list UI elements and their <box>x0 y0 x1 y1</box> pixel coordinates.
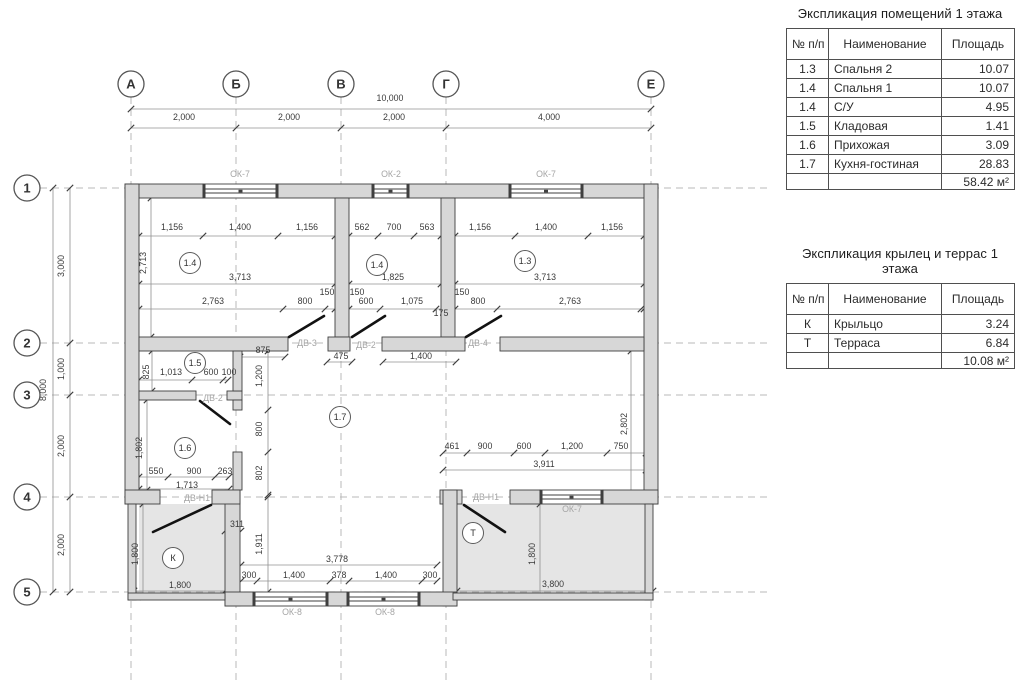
room-schedule-title: Экспликация помещений 1 этажа <box>786 6 1014 21</box>
dim-label: 900 <box>478 441 493 451</box>
window-jamb <box>372 184 375 198</box>
dim-label: 600 <box>517 441 532 451</box>
dim-label: 563 <box>420 222 435 232</box>
row-number-cell: Т <box>787 334 829 353</box>
wall <box>443 490 457 606</box>
dim-label: 600 <box>204 367 219 377</box>
door-tag: ДВ-2 <box>356 340 376 350</box>
dim-label: 2,000 <box>278 112 300 122</box>
window-tag: ОК-8 <box>375 607 395 617</box>
wall <box>510 490 540 504</box>
dim-label: 550 <box>149 466 164 476</box>
dim-label: 3,800 <box>542 579 564 589</box>
room-name-cell: Прихожая <box>829 136 942 155</box>
dim-label: 600 <box>359 296 374 306</box>
window-jamb <box>418 592 421 606</box>
dim-label: 378 <box>332 570 347 580</box>
table-row: 1.7Кухня-гостиная28.83 <box>787 155 1015 174</box>
dim-label: 1,400 <box>375 570 397 580</box>
door-tag: ДВ-4 <box>468 338 488 348</box>
window-jamb <box>407 184 410 198</box>
dim-label: 3,778 <box>326 554 348 564</box>
room-badge-label: К <box>170 553 176 563</box>
area-cell: 6.84 <box>942 334 1015 353</box>
room-badge-label: Т <box>470 528 476 538</box>
window-center-mark <box>544 190 548 193</box>
wall <box>125 490 160 504</box>
window-jamb <box>203 184 206 198</box>
room-schedule: Экспликация помещений 1 этажа № п/пНаиме… <box>786 6 1014 190</box>
empty-cell <box>787 174 829 190</box>
dim-label: 475 <box>334 351 349 361</box>
empty-cell <box>829 353 942 369</box>
dim-label: 1,400 <box>229 222 251 232</box>
porch-terrace-schedule-title: Экспликация крылец и террас 1 этажа <box>786 246 1014 276</box>
window-jamb <box>276 184 279 198</box>
wall <box>233 400 242 410</box>
table-row: 1.3Спальня 210.07 <box>787 60 1015 79</box>
window-center-mark <box>239 190 243 193</box>
dim-label: 875 <box>256 345 271 355</box>
wall <box>139 391 196 400</box>
room-name-cell: Кухня-гостиная <box>829 155 942 174</box>
window-jamb <box>601 490 604 504</box>
room-name-cell: С/У <box>829 98 942 117</box>
dim-label: 750 <box>614 441 629 451</box>
window-jamb <box>540 490 543 504</box>
room-name-cell: Крыльцо <box>829 315 942 334</box>
window-jamb <box>581 184 584 198</box>
total-row: 58.42 м² <box>787 174 1015 190</box>
dim-label: 802 <box>254 466 264 481</box>
dim-label: 2,713 <box>138 252 148 274</box>
area-cell: 10.07 <box>942 60 1015 79</box>
dim-label: 2,000 <box>383 112 405 122</box>
header-row: № п/пНаименованиеПлощадь <box>787 29 1015 60</box>
dim-label: 800 <box>254 422 264 437</box>
dim-label: 4,000 <box>538 112 560 122</box>
axis-label: Г <box>442 77 450 92</box>
dim-label: 263 <box>218 466 233 476</box>
wall <box>225 490 240 606</box>
dim-label: 1,000 <box>56 358 66 380</box>
dim-label: 1,802 <box>134 437 144 459</box>
wall <box>328 592 347 606</box>
dim-label: 1,800 <box>130 543 140 565</box>
column-header: Площадь <box>942 29 1015 60</box>
column-header: Наименование <box>829 29 942 60</box>
room-badge-label: 1.6 <box>179 443 192 453</box>
room-badge-label: 1.3 <box>519 256 532 266</box>
area-cell: 28.83 <box>942 155 1015 174</box>
dim-label: 311 <box>230 519 244 529</box>
window-jamb <box>347 592 350 606</box>
door-tag: ДВ-Н1 <box>184 493 210 503</box>
area-cell: 10.07 <box>942 79 1015 98</box>
room-name-cell: Спальня 1 <box>829 79 942 98</box>
column-header: № п/п <box>787 29 829 60</box>
dim-label: 150 <box>455 287 470 297</box>
wall <box>603 490 658 504</box>
dim-label: 10,000 <box>377 93 404 103</box>
window-center-mark <box>389 190 393 193</box>
dim-label: 3,713 <box>229 272 251 282</box>
door-tag: ДВ-Н1 <box>473 492 499 502</box>
axis-label: А <box>126 77 136 92</box>
table-row: 1.6Прихожая3.09 <box>787 136 1015 155</box>
wall <box>128 593 225 600</box>
window-tag: ОК-2 <box>381 169 401 179</box>
axis-label: 5 <box>23 585 30 600</box>
table-row: ТТерраса6.84 <box>787 334 1015 353</box>
door-tag: ДВ-3 <box>297 338 317 348</box>
empty-cell <box>787 353 829 369</box>
dim-label: 1,400 <box>535 222 557 232</box>
row-number-cell: 1.4 <box>787 79 829 98</box>
wall <box>328 337 350 351</box>
dim-label: 100 <box>222 367 237 377</box>
dim-label: 1,156 <box>161 222 183 232</box>
dim-label: 825 <box>141 365 151 380</box>
dim-label: 2,000 <box>56 534 66 556</box>
axis-label: 1 <box>23 181 30 196</box>
room-name-cell: Терраса <box>829 334 942 353</box>
wall <box>212 490 240 504</box>
wall <box>335 198 349 337</box>
dim-label: 2,802 <box>619 413 629 435</box>
room-badge-label: 1.7 <box>334 412 347 422</box>
dim-label: 2,763 <box>202 296 224 306</box>
dim-label: 1,200 <box>561 441 583 451</box>
dim-label: 175 <box>434 308 449 318</box>
porch-terrace-schedule: Экспликация крылец и террас 1 этажа № п/… <box>786 246 1014 369</box>
dim-label: 800 <box>298 296 313 306</box>
axis-label: 4 <box>23 490 31 505</box>
row-number-cell: 1.6 <box>787 136 829 155</box>
axis-label: В <box>336 77 345 92</box>
dim-label: 2,000 <box>173 112 195 122</box>
dim-label: 1,013 <box>160 367 182 377</box>
dim-label: 700 <box>387 222 402 232</box>
wall <box>645 504 653 600</box>
door-tag: ДВ-2 <box>203 393 223 403</box>
room-schedule-table: № п/пНаименованиеПлощадь1.3Спальня 210.0… <box>786 28 1015 190</box>
area-cell: 1.41 <box>942 117 1015 136</box>
room-badge-label: 1.4 <box>371 260 384 270</box>
axis-label: Б <box>231 77 240 92</box>
dim-label: 800 <box>471 296 486 306</box>
dim-label: 1,825 <box>382 272 404 282</box>
wall <box>409 184 509 198</box>
room-badge-label: 1.5 <box>189 358 202 368</box>
window-center-mark <box>289 598 293 601</box>
wall <box>382 337 465 351</box>
table-row: ККрыльцо3.24 <box>787 315 1015 334</box>
axis-label: 3 <box>23 388 30 403</box>
dim-label: 1,156 <box>296 222 318 232</box>
wall <box>500 337 644 351</box>
dim-label: 461 <box>445 441 460 451</box>
window-tag: ОК-7 <box>230 169 250 179</box>
row-number-cell: 1.5 <box>787 117 829 136</box>
row-number-cell: К <box>787 315 829 334</box>
window-tag: ОК-7 <box>536 169 556 179</box>
floor-plan-sheet: 10,0002,0002,0002,0004,0008,0003,0001,00… <box>0 0 780 700</box>
window-jamb <box>509 184 512 198</box>
area-cell: 3.24 <box>942 315 1015 334</box>
area-cell: 4.95 <box>942 98 1015 117</box>
dim-label: 900 <box>187 466 202 476</box>
dim-label: 1,911 <box>254 533 264 554</box>
row-number-cell: 1.4 <box>787 98 829 117</box>
row-number-cell: 1.7 <box>787 155 829 174</box>
room-name-cell: Спальня 2 <box>829 60 942 79</box>
schedule-tables: Экспликация помещений 1 этажа № п/пНаиме… <box>786 6 1014 369</box>
dim-label: 2,000 <box>56 435 66 457</box>
wall <box>278 184 372 198</box>
room-name-cell: Кладовая <box>829 117 942 136</box>
dim-label: 3,000 <box>56 255 66 277</box>
window-center-mark <box>570 496 574 499</box>
dim-label: 300 <box>242 570 257 580</box>
column-header: Наименование <box>829 284 942 315</box>
dim-label: 1,400 <box>410 351 432 361</box>
floor-plan: 10,0002,0002,0002,0004,0008,0003,0001,00… <box>0 0 780 700</box>
area-cell: 3.09 <box>942 136 1015 155</box>
table-row: 1.4Спальня 110.07 <box>787 79 1015 98</box>
window-tag: ОК-8 <box>282 607 302 617</box>
total-area-value: 10.08 м² <box>942 353 1015 369</box>
header-row: № п/пНаименованиеПлощадь <box>787 284 1015 315</box>
wall <box>227 391 242 400</box>
dim-label: 1,800 <box>169 580 191 590</box>
window-center-mark <box>382 598 386 601</box>
window-jamb <box>326 592 329 606</box>
dim-label: 150 <box>320 287 335 297</box>
porch-terrace-schedule-table: № п/пНаименованиеПлощадьККрыльцо3.24ТТер… <box>786 283 1015 369</box>
axis-label: Е <box>647 77 656 92</box>
dim-label: 3,911 <box>533 459 554 469</box>
total-area-value: 58.42 м² <box>942 174 1015 190</box>
empty-cell <box>829 174 942 190</box>
table-row: 1.5Кладовая1.41 <box>787 117 1015 136</box>
window-tag: ОК-7 <box>562 504 582 514</box>
table-row: 1.4С/У4.95 <box>787 98 1015 117</box>
dim-label: 1,200 <box>254 365 264 387</box>
dim-label: 1,075 <box>401 296 423 306</box>
wall <box>225 592 253 606</box>
wall <box>453 593 653 600</box>
wall <box>644 184 658 504</box>
wall <box>420 592 457 606</box>
column-header: № п/п <box>787 284 829 315</box>
wall <box>233 452 242 490</box>
total-row: 10.08 м² <box>787 353 1015 369</box>
dim-label: 562 <box>355 222 370 232</box>
dim-label: 1,156 <box>469 222 491 232</box>
row-number-cell: 1.3 <box>787 60 829 79</box>
dim-label: 1,713 <box>176 480 198 490</box>
dim-label: 2,763 <box>559 296 581 306</box>
window-jamb <box>253 592 256 606</box>
dim-label: 1,156 <box>601 222 623 232</box>
dim-label: 1,800 <box>527 543 537 565</box>
dim-label: 1,400 <box>283 570 305 580</box>
dim-label: 300 <box>423 570 438 580</box>
room-badge-label: 1.4 <box>184 258 197 268</box>
dim-label: 3,713 <box>534 272 556 282</box>
axis-label: 2 <box>23 336 30 351</box>
column-header: Площадь <box>942 284 1015 315</box>
